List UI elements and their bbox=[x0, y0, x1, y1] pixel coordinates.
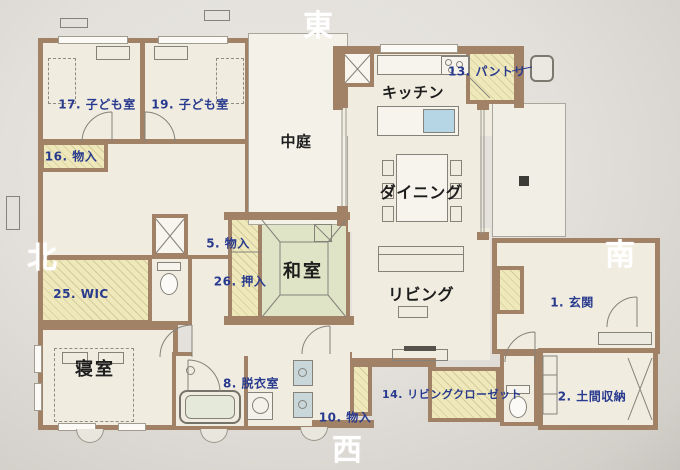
compass-north: 北 bbox=[27, 233, 57, 277]
label-storage-16: 16. 物入 bbox=[45, 148, 97, 165]
wall-post-east-top bbox=[477, 100, 489, 110]
kitchen-closet-box bbox=[341, 50, 374, 87]
label-living-closet-14: 14. リビングクローゼット bbox=[382, 386, 522, 402]
window-bedroom-south-2 bbox=[118, 423, 146, 431]
exterior-unit bbox=[6, 196, 20, 230]
compass-south: 南 bbox=[605, 230, 635, 274]
deck-column bbox=[519, 176, 529, 186]
desk-child17 bbox=[96, 46, 130, 60]
sofa-back bbox=[378, 246, 464, 255]
label-wic-25: 25. WIC bbox=[53, 287, 108, 301]
label-storage-10: 10. 物入 bbox=[319, 409, 371, 426]
window-bedroom-west-1 bbox=[34, 345, 42, 373]
label-oshiire-26: 26. 押入 bbox=[214, 273, 266, 290]
label-dressing-8: 8. 脱衣室 bbox=[223, 375, 279, 392]
exterior-step bbox=[76, 429, 104, 443]
wall-post-east-mid bbox=[477, 232, 489, 240]
label-storage-5: 5. 物入 bbox=[206, 235, 250, 252]
exterior-step bbox=[200, 429, 228, 443]
living-table bbox=[398, 306, 428, 318]
floor-plan-photo: 東 西 北 南 17. 子ども室 19. 子ども室 16. 物入 中庭 キッチン… bbox=[0, 0, 680, 470]
window-child19-north bbox=[158, 36, 228, 44]
compass-west: 西 bbox=[332, 425, 362, 469]
washitsu-corner-box bbox=[314, 224, 332, 242]
bathtub-inner bbox=[185, 395, 235, 419]
toilet-bowl bbox=[160, 273, 178, 295]
exterior-step bbox=[300, 427, 328, 441]
window-bedroom-west-2 bbox=[34, 383, 42, 411]
dining-chair bbox=[382, 206, 394, 222]
terrace-deck bbox=[492, 103, 566, 237]
label-living: リビング bbox=[388, 281, 454, 305]
tv bbox=[404, 346, 436, 351]
window-child17-north bbox=[58, 36, 128, 44]
label-courtyard: 中庭 bbox=[280, 131, 311, 152]
label-bedroom: 寝室 bbox=[75, 355, 115, 381]
label-entrance-1: 1. 玄関 bbox=[550, 294, 594, 311]
label-child-room-17: 17. 子ども室 bbox=[58, 96, 135, 113]
toilet-tank bbox=[157, 262, 181, 271]
label-doma-storage-2: 2. 土間収納 bbox=[558, 388, 627, 405]
wall-washitsu-bottom bbox=[224, 316, 354, 325]
corridor-horizontal bbox=[192, 322, 370, 356]
hall-closet-box bbox=[152, 214, 188, 257]
entrance-porch bbox=[598, 332, 652, 345]
closet-strip-5-26 bbox=[228, 216, 262, 320]
wall-post-court-top bbox=[337, 84, 348, 108]
basin-drain-icon bbox=[298, 368, 307, 377]
wall-washitsu-top bbox=[224, 212, 350, 220]
dining-chair bbox=[450, 206, 462, 222]
exterior-unit bbox=[60, 18, 88, 28]
desk-child19 bbox=[154, 46, 188, 60]
exterior-unit bbox=[204, 10, 230, 21]
label-child-room-19: 19. 子ども室 bbox=[151, 96, 228, 113]
label-pantry-13: 13. パントリ bbox=[448, 63, 526, 80]
island-sink bbox=[423, 109, 455, 133]
label-japanese-room: 和室 bbox=[283, 257, 323, 283]
label-dining: ダイニング bbox=[380, 179, 463, 203]
washer-drum bbox=[252, 397, 269, 414]
shower-icon bbox=[186, 366, 195, 375]
window-kitchen-north bbox=[380, 44, 458, 53]
dining-chair bbox=[450, 160, 462, 176]
label-kitchen: キッチン bbox=[382, 82, 444, 103]
dining-chair bbox=[382, 160, 394, 176]
water-heater-unit bbox=[530, 55, 554, 82]
compass-east: 東 bbox=[303, 1, 333, 45]
basin-drain-icon bbox=[298, 400, 307, 409]
shoe-cabinet bbox=[496, 266, 524, 314]
